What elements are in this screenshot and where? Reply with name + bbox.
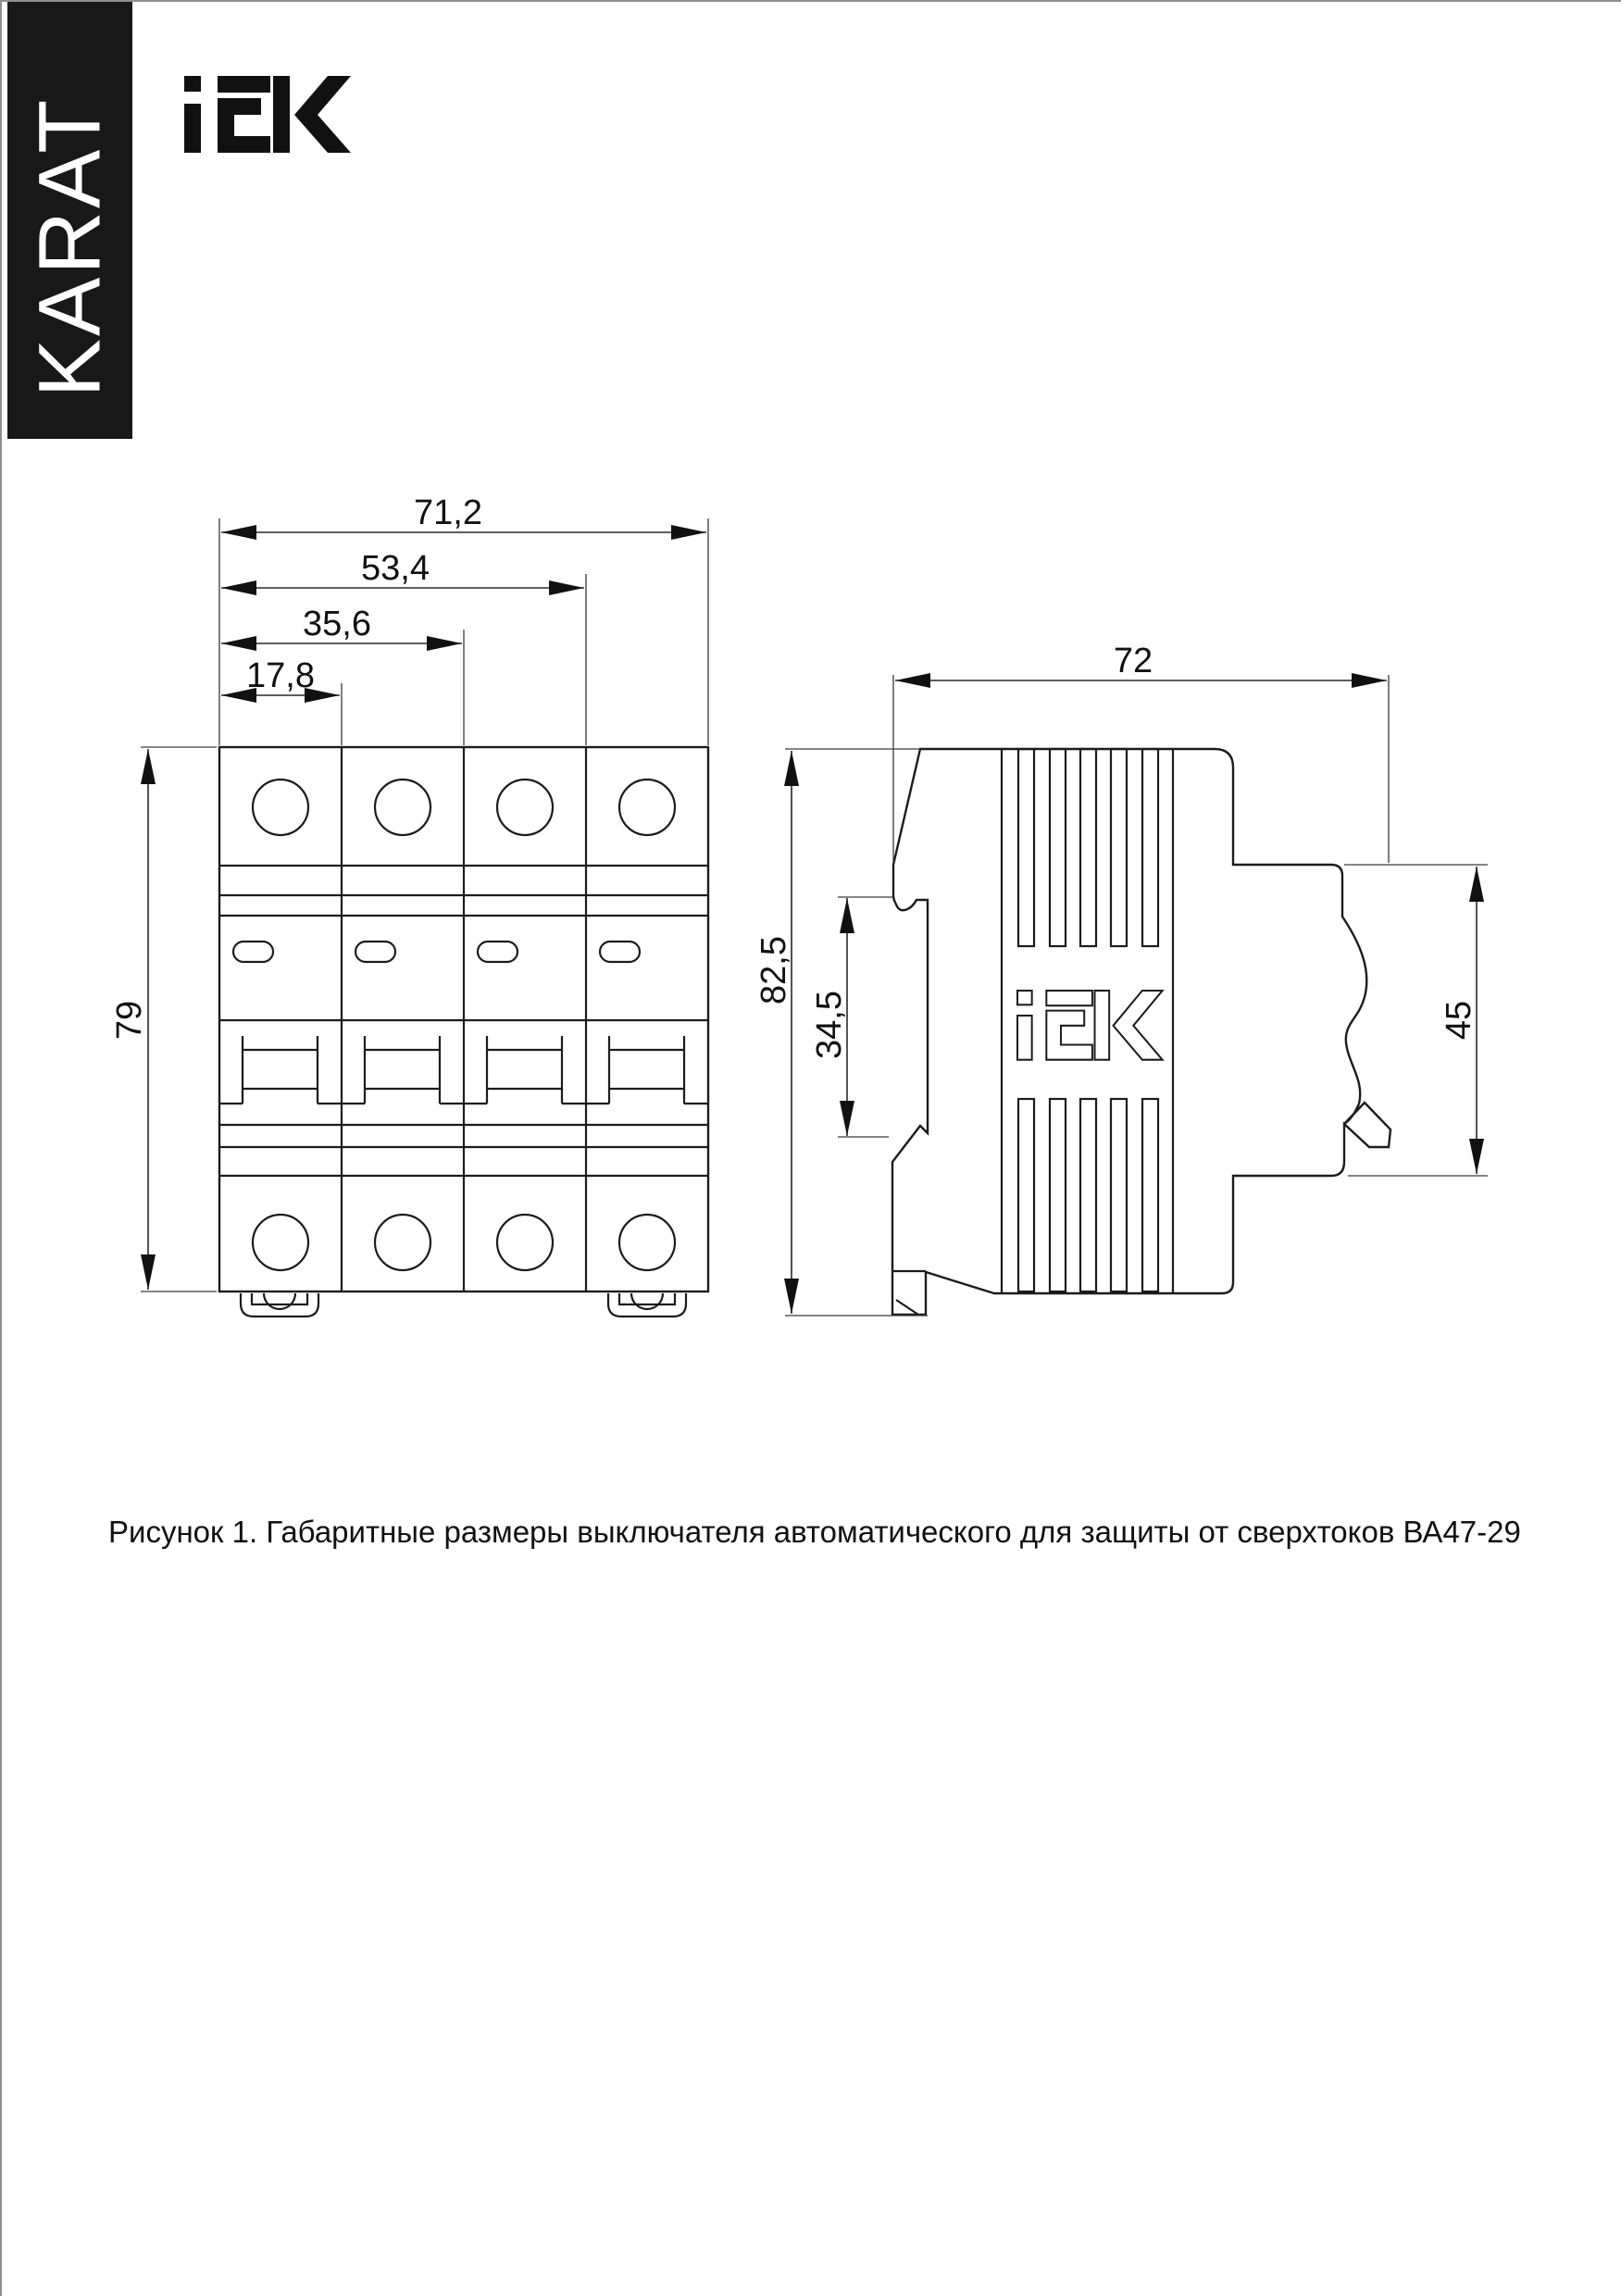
pole-1 (219, 780, 342, 1270)
dim-label-depth: 72 (1114, 642, 1153, 680)
din-clip-right (608, 1293, 686, 1316)
rib-block-edges (1002, 749, 1173, 1293)
pole-2 (342, 780, 464, 1270)
dim-label-width-two-modules: 35,6 (303, 605, 371, 643)
dim-label-front-height: 79 (110, 1001, 149, 1040)
technical-drawing: 71,2 53,4 35,6 17,8 79 72 82,5 34,5 45 (2, 2, 1621, 2296)
dim-label-din-recess: 34,5 (810, 991, 849, 1059)
dim-label-width-three-modules: 53,4 (361, 549, 430, 588)
figure-caption: Рисунок 1. Габаритные размеры выключател… (108, 1515, 1521, 1550)
vent-slots-top (1018, 749, 1158, 946)
vent-slots-bottom (1018, 1099, 1158, 1291)
dim-label-width-one-module: 17,8 (246, 656, 315, 695)
side-view-drawing (892, 749, 1390, 1315)
din-clip-left (241, 1293, 318, 1316)
front-view-drawing (219, 747, 708, 1316)
dimension-annotations: 71,2 53,4 35,6 17,8 79 72 82,5 34,5 45 (110, 493, 1488, 1316)
dim-label-width-total: 71,2 (414, 493, 482, 532)
iek-logo (184, 76, 351, 153)
datasheet-page: KARAT (0, 0, 1621, 2296)
dim-label-height-total: 82,5 (754, 936, 793, 1004)
dim-label-front-face-height: 45 (1440, 1001, 1478, 1040)
pole-4 (586, 780, 708, 1270)
pole-3 (464, 780, 586, 1270)
iek-logo-embossed (1017, 991, 1163, 1060)
din-latch-detail (892, 1271, 926, 1315)
